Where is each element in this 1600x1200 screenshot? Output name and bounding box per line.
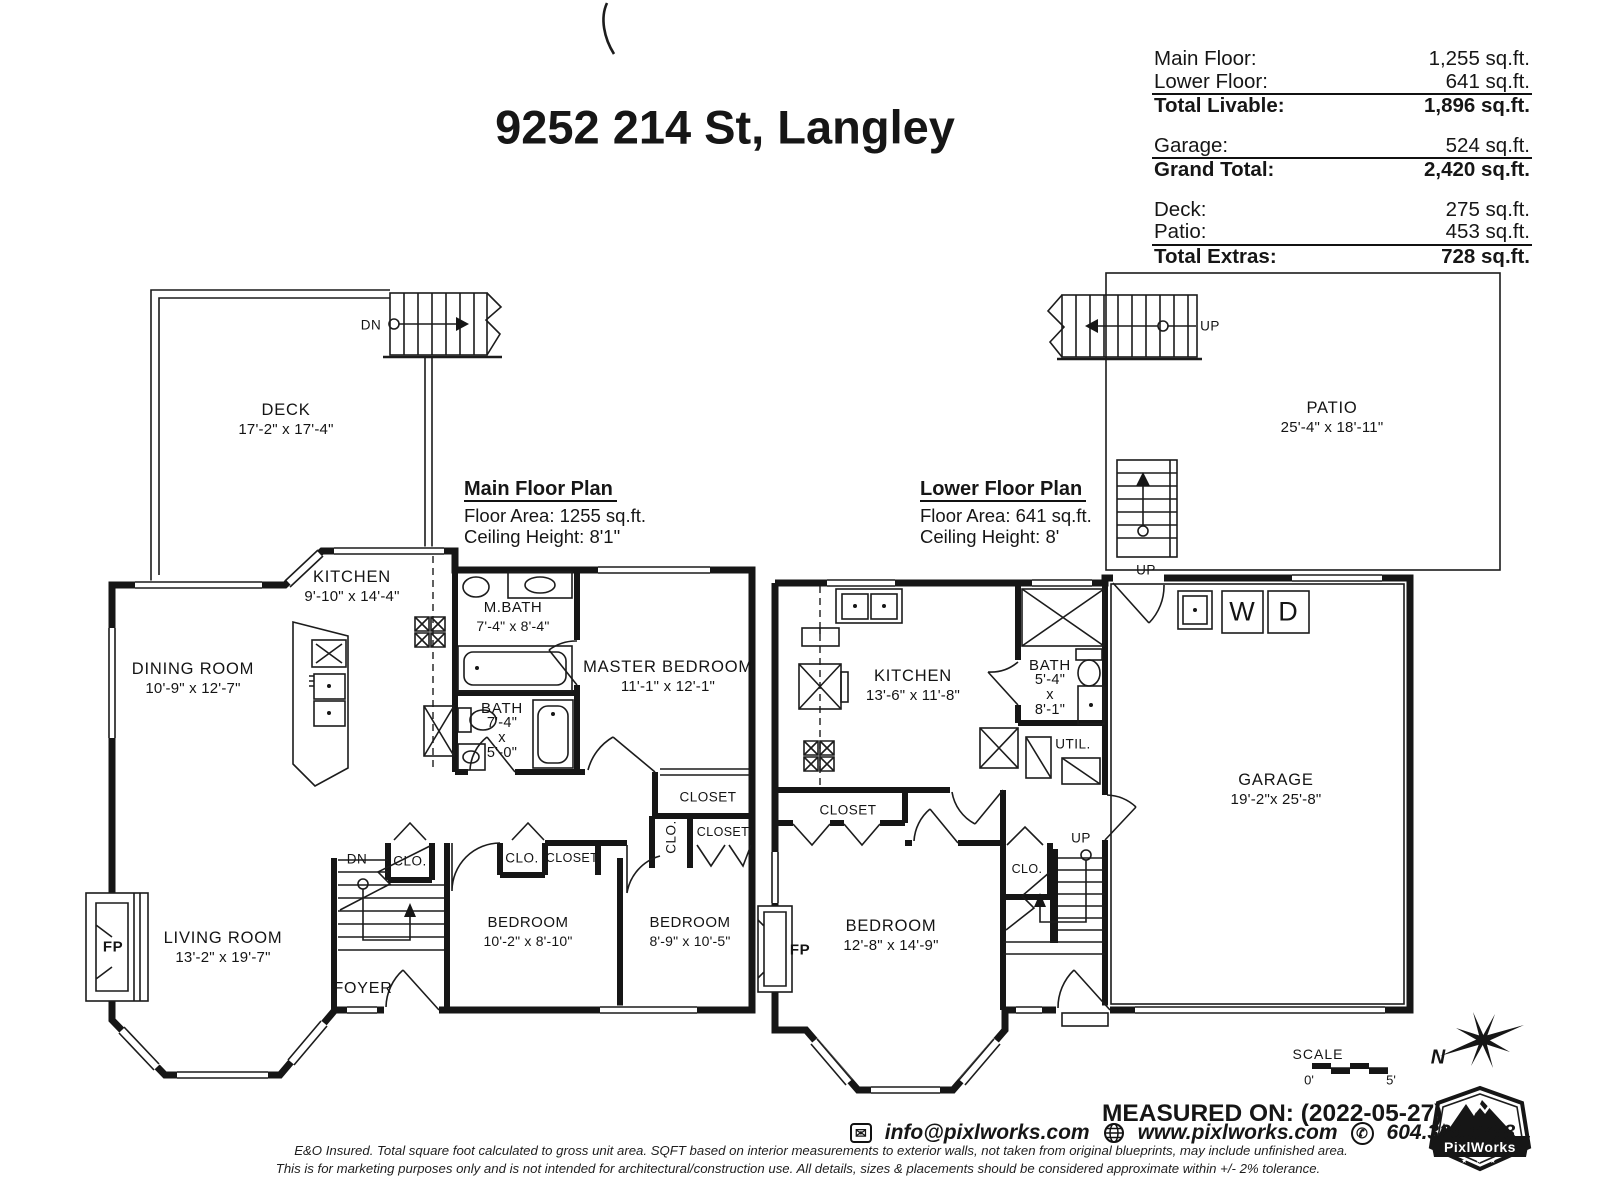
room-label-m-bath: M.BATH 7'-4" x 8'-4" — [476, 598, 549, 636]
summary-row: Deck:275 sq.ft. — [1152, 199, 1532, 222]
summary-row: Main Floor:1,255 sq.ft. — [1152, 48, 1532, 71]
pixlworks-brand-stars: ★ ★ ★ — [1461, 1157, 1499, 1165]
closet-label-lower-hall: CLO. — [1012, 862, 1043, 876]
summary-row-total: Grand Total:2,420 sq.ft. — [1152, 157, 1532, 182]
room-label-garage: GARAGE 19'-2"x 25'-8" — [1231, 771, 1322, 809]
room-label-deck: DECK 17'-2" x 17'-4" — [238, 401, 333, 439]
stair-dn-label-deck: DN — [361, 318, 382, 333]
contact-email: info@pixlworks.com — [885, 1121, 1090, 1145]
contact-website: www.pixlworks.com — [1138, 1121, 1338, 1145]
summary-row: Patio:453 sq.ft. — [1152, 221, 1532, 244]
contact-row: ✉info@pixlworks.com www.pixlworks.com ✆6… — [850, 1121, 1515, 1145]
lower-floor-area: Floor Area: 641 sq.ft. — [920, 505, 1092, 526]
globe-icon — [1103, 1122, 1125, 1144]
lower-floor-ceiling: Ceiling Height: 8' — [920, 526, 1059, 547]
stair-up-label-lower: UP — [1071, 831, 1091, 846]
scale-label: SCALE — [1293, 1046, 1344, 1062]
disclaimer-line-1: E&O Insured. Total square foot calculate… — [294, 1143, 1348, 1158]
main-floor-plan-heading: Main Floor Plan Floor Area: 1255 sq.ft. … — [464, 478, 646, 547]
room-label-living-room: LIVING ROOM 13'-2" x 19'-7" — [164, 929, 283, 967]
closet-label-bedroom-a: CLO. — [505, 851, 539, 866]
stair-up-label-patio-top: UP — [1200, 319, 1220, 334]
summary-row-total: Total Livable:1,896 sq.ft. — [1152, 93, 1532, 118]
disclaimer-line-2: This is for marketing purposes only and … — [276, 1161, 1320, 1176]
summary-row-total: Total Extras:728 sq.ft. — [1152, 244, 1532, 269]
scale-bar — [1312, 1063, 1388, 1074]
utility-label: UTIL. — [1055, 737, 1091, 752]
closet-label-bedroom-b: CLOSET — [697, 825, 749, 839]
fireplace-label-lower: FP — [790, 942, 810, 959]
room-label-bath-lower: BATH 5'-4" x 8'-1" — [1029, 658, 1071, 718]
washer-label: W — [1229, 597, 1254, 628]
room-label-foyer: FOYER — [333, 980, 392, 998]
dryer-label: D — [1278, 597, 1298, 628]
room-label-kitchen-main: KITCHEN 9'-10" x 14'-4" — [304, 568, 399, 606]
closet-label-lower-bedroom: CLOSET — [819, 803, 876, 818]
patio-drawing — [1048, 273, 1500, 570]
room-label-patio: PATIO 25'-4" x 18'-11" — [1281, 399, 1384, 437]
room-label-dining-room: DINING ROOM 10'-9" x 12'-7" — [132, 660, 254, 698]
page-title: 9252 214 St, Langley — [495, 100, 955, 155]
room-label-bedroom-b: BEDROOM 8'-9" x 10'-5" — [649, 913, 730, 951]
room-label-bedroom-lower: BEDROOM 12'-8" x 14'-9" — [843, 917, 938, 955]
summary-row: Garage:524 sq.ft. — [1152, 135, 1532, 158]
room-label-bedroom-a: BEDROOM 10'-2" x 8'-10" — [483, 913, 572, 951]
main-floor-ceiling: Ceiling Height: 8'1" — [464, 526, 620, 547]
area-summary-table: Main Floor:1,255 sq.ft. Lower Floor:641 … — [1152, 48, 1532, 268]
room-label-bath-main: BATH 7'-4" x 5'-0" — [481, 701, 523, 761]
stair-dn-label-main: DN — [347, 852, 368, 867]
lower-floor-plan-heading: Lower Floor Plan Floor Area: 641 sq.ft. … — [920, 478, 1092, 547]
scale-start: 0' — [1304, 1073, 1314, 1088]
room-label-master-bedroom: MASTER BEDROOM 11'-1" x 12'-1" — [583, 658, 753, 696]
scan-artifact-mark — [603, 3, 614, 54]
room-label-kitchen-lower: KITCHEN 13'-6" x 11'-8" — [866, 667, 960, 705]
main-floor-area: Floor Area: 1255 sq.ft. — [464, 505, 646, 526]
pixlworks-brand-text: PixlWorks — [1444, 1139, 1516, 1155]
email-icon: ✉ — [850, 1123, 872, 1143]
closet-label-master: CLOSET — [679, 790, 736, 805]
stair-up-label-patio-left: UP — [1136, 563, 1156, 578]
summary-row: Lower Floor:641 sq.ft. — [1152, 71, 1532, 94]
compass-rose-icon — [1440, 1012, 1524, 1068]
phone-icon: ✆ — [1351, 1122, 1374, 1145]
closet-label-hall-vertical: CLO. — [664, 820, 679, 854]
closet-label-bedroom-a2: CLOSET — [546, 851, 598, 865]
compass-north-label: N — [1431, 1047, 1445, 1070]
scale-end: 5' — [1386, 1073, 1396, 1088]
fireplace-label-main: FP — [103, 939, 123, 956]
closet-label-coat: CLO. — [393, 854, 427, 869]
floor-plan-sheet: { "page": { "title": "9252 214 St, Langl… — [0, 0, 1600, 1200]
